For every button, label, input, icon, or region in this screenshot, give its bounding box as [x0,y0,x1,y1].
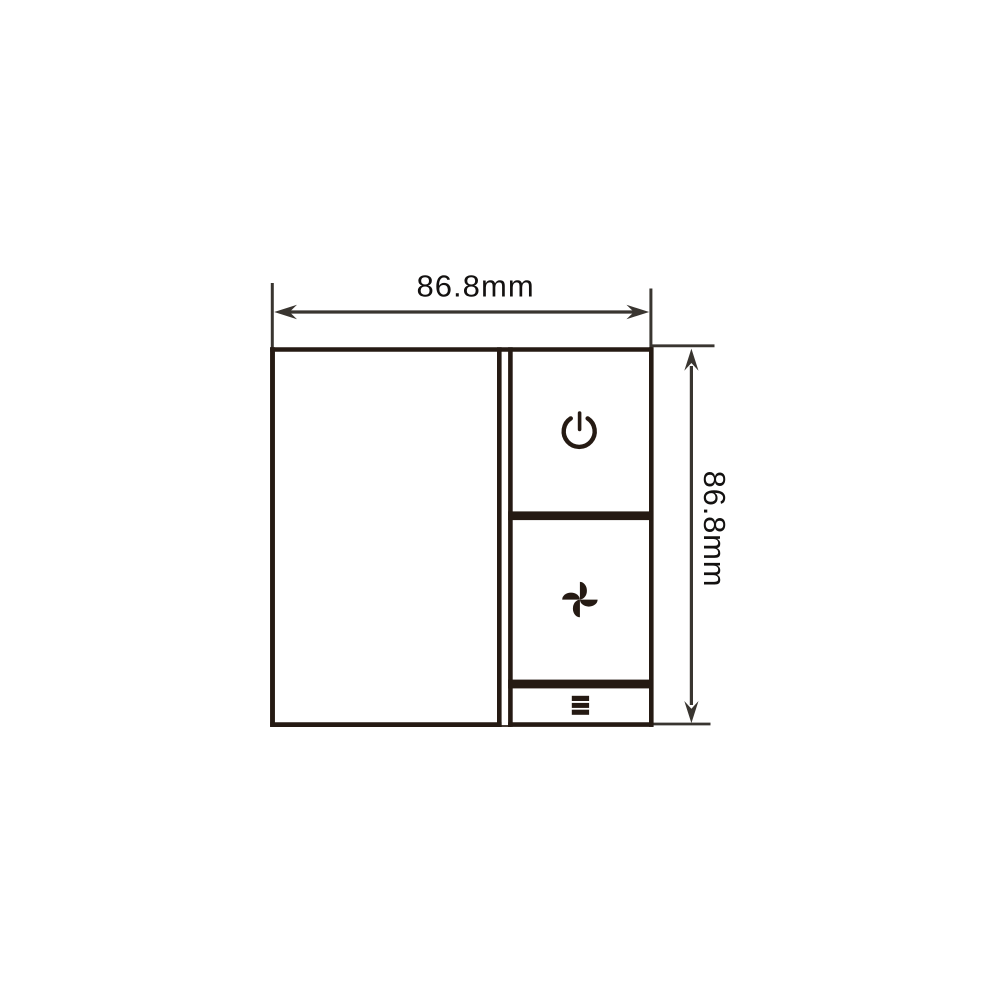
svg-text:86.8mm: 86.8mm [697,471,732,588]
svg-text:86.8mm: 86.8mm [416,268,534,303]
